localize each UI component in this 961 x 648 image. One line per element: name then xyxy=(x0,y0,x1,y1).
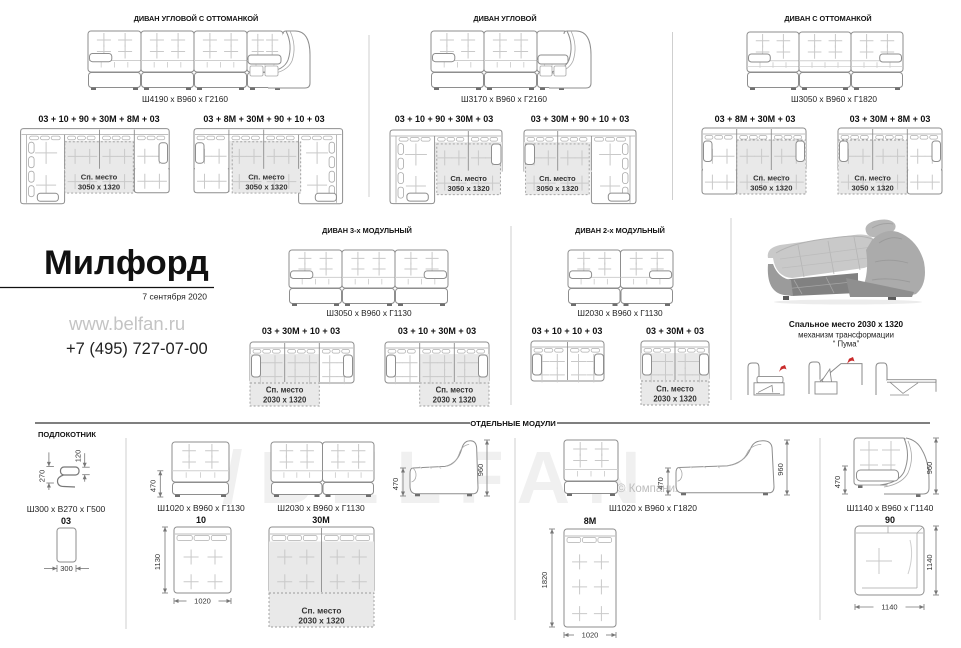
svg-text:Ш3170 х В960 х Г2160: Ш3170 х В960 х Г2160 xyxy=(461,94,547,104)
svg-text:2030 х 1320: 2030 х 1320 xyxy=(433,396,477,405)
svg-text:Ш2030 х В960 х Г1130: Ш2030 х В960 х Г1130 xyxy=(277,503,365,513)
svg-text:Сп. место: Сп. место xyxy=(248,173,285,182)
svg-text:03 + 30М + 8М + 03: 03 + 30М + 8М + 03 xyxy=(850,114,931,124)
svg-text:ДИВАН С ОТТОМАНКОЙ: ДИВАН С ОТТОМАНКОЙ xyxy=(784,14,871,23)
svg-text:8М: 8М xyxy=(584,516,597,526)
svg-text:3050 х 1320: 3050 х 1320 xyxy=(245,183,287,192)
svg-text:“ Пума”: “ Пума” xyxy=(833,340,860,349)
svg-text:www.belfan.ru: www.belfan.ru xyxy=(68,313,185,334)
svg-text:960: 960 xyxy=(925,462,934,475)
svg-text:Сп. место: Сп. место xyxy=(266,386,304,395)
svg-text:960: 960 xyxy=(476,464,485,477)
svg-text:Сп. место: Сп. место xyxy=(450,174,487,183)
svg-text:механизм трансформации: механизм трансформации xyxy=(798,331,894,340)
svg-text:7 сентября 2020: 7 сентября 2020 xyxy=(142,292,207,302)
svg-text:03 + 30М + 03: 03 + 30М + 03 xyxy=(646,326,704,336)
svg-text:03 + 10 + 90 + 30М + 03: 03 + 10 + 90 + 30М + 03 xyxy=(395,114,494,124)
svg-text:1140: 1140 xyxy=(925,554,934,570)
svg-text:470: 470 xyxy=(391,478,400,491)
svg-text:3050 х 1320: 3050 х 1320 xyxy=(750,184,792,193)
svg-text:1020: 1020 xyxy=(194,597,211,606)
svg-text:Ш4190 х В960 х Г2160: Ш4190 х В960 х Г2160 xyxy=(142,94,228,104)
svg-text:1020: 1020 xyxy=(582,631,599,640)
svg-text:03 + 10 + 90 + 30М + 8М + 03: 03 + 10 + 90 + 30М + 8М + 03 xyxy=(38,114,159,124)
svg-text:960: 960 xyxy=(776,463,785,476)
svg-text:03: 03 xyxy=(61,516,71,526)
svg-text:Спальное место 2030 х 1320: Спальное место 2030 х 1320 xyxy=(789,320,904,329)
svg-text:1130: 1130 xyxy=(153,554,162,570)
svg-text:03 + 10 + 10 + 03: 03 + 10 + 10 + 03 xyxy=(532,326,603,336)
svg-text:Сп. место: Сп. место xyxy=(854,174,891,183)
svg-text:3050 х 1320: 3050 х 1320 xyxy=(536,184,578,193)
svg-text:1140: 1140 xyxy=(881,603,897,612)
svg-text:03 + 8М + 30М + 03: 03 + 8М + 30М + 03 xyxy=(715,114,796,124)
svg-text:Сп. место: Сп. место xyxy=(81,173,118,182)
svg-text:30М: 30М xyxy=(312,515,330,525)
svg-text:300: 300 xyxy=(60,564,73,573)
svg-text:ДИВАН УГЛОВОЙ: ДИВАН УГЛОВОЙ xyxy=(473,14,536,23)
svg-text:03 + 10 + 30М + 03: 03 + 10 + 30М + 03 xyxy=(398,326,476,336)
svg-text:3050 х 1320: 3050 х 1320 xyxy=(78,183,120,192)
svg-text:03 + 30М + 10 + 03: 03 + 30М + 10 + 03 xyxy=(262,326,340,336)
svg-text:2030 х 1320: 2030 х 1320 xyxy=(653,395,697,404)
svg-text:Милфорд: Милфорд xyxy=(44,244,209,282)
svg-text:Ш1020 х В960 х Г1820: Ш1020 х В960 х Г1820 xyxy=(609,503,697,513)
svg-text:3050 х 1320: 3050 х 1320 xyxy=(447,184,489,193)
svg-text:90: 90 xyxy=(885,515,895,525)
svg-text:2030 х 1320: 2030 х 1320 xyxy=(298,616,345,626)
svg-text:Ш3050 х В960 х Г1820: Ш3050 х В960 х Г1820 xyxy=(791,94,877,104)
svg-text:Сп. место: Сп. место xyxy=(539,174,576,183)
svg-text:ДИВАН УГЛОВОЙ С ОТТОМАНКОЙ: ДИВАН УГЛОВОЙ С ОТТОМАНКОЙ xyxy=(134,14,259,23)
svg-text:470: 470 xyxy=(833,476,842,489)
svg-text:ОТДЕЛЬНЫЕ МОДУЛИ: ОТДЕЛЬНЫЕ МОДУЛИ xyxy=(470,419,556,428)
svg-text:Сп. место: Сп. место xyxy=(656,385,694,394)
svg-text:3050 х 1320: 3050 х 1320 xyxy=(852,184,894,193)
svg-text:470: 470 xyxy=(149,480,158,493)
svg-text:470: 470 xyxy=(656,477,665,490)
svg-text:03 + 30М + 90 + 10 + 03: 03 + 30М + 90 + 10 + 03 xyxy=(531,114,630,124)
svg-text:+7 (495) 727-07-00: +7 (495) 727-07-00 xyxy=(66,340,208,358)
svg-text:Ш3050 х В960 х Г1130: Ш3050 х В960 х Г1130 xyxy=(326,308,412,318)
svg-text:ПОДЛОКОТНИК: ПОДЛОКОТНИК xyxy=(38,430,96,439)
svg-text:Сп. место: Сп. место xyxy=(302,606,342,616)
svg-text:Сп. место: Сп. место xyxy=(436,386,474,395)
svg-text:Сп. место: Сп. место xyxy=(753,174,790,183)
svg-text:120: 120 xyxy=(74,450,83,463)
svg-text:2030 х 1320: 2030 х 1320 xyxy=(263,396,307,405)
svg-text:Ш1020 х В960 х Г1130: Ш1020 х В960 х Г1130 xyxy=(157,503,245,513)
svg-text:ДИВАН 2-х МОДУЛЬНЫЙ: ДИВАН 2-х МОДУЛЬНЫЙ xyxy=(575,226,665,235)
svg-text:1820: 1820 xyxy=(540,572,549,589)
svg-text:ДИВАН 3-х МОДУЛЬНЫЙ: ДИВАН 3-х МОДУЛЬНЫЙ xyxy=(322,226,412,235)
svg-text:270: 270 xyxy=(38,470,47,483)
svg-text:Ш1140 х В960 х Г1140: Ш1140 х В960 х Г1140 xyxy=(847,503,934,513)
svg-text:Ш2030 х В960 х Г1130: Ш2030 х В960 х Г1130 xyxy=(577,308,663,318)
svg-text:10: 10 xyxy=(196,515,206,525)
svg-text:03 + 8М + 30М + 90 + 10 + 03: 03 + 8М + 30М + 90 + 10 + 03 xyxy=(203,114,324,124)
svg-text:Ш300 х В270 х Г500: Ш300 х В270 х Г500 xyxy=(27,504,106,514)
